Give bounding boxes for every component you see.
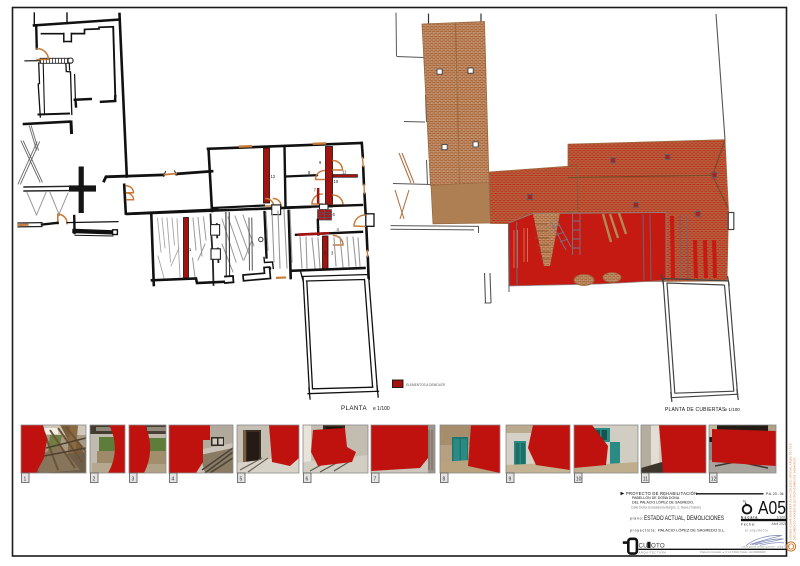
svg-text:e 1/100: e 1/100 (725, 407, 741, 412)
svg-text:plano:: plano: (630, 516, 644, 520)
svg-text:PALACIO LÓPEZ DE SAGREDO S.L.: PALACIO LÓPEZ DE SAGREDO S.L. (658, 528, 725, 533)
svg-text:9: 9 (509, 477, 512, 483)
svg-text:1/100: 1/100 (777, 515, 786, 519)
svg-text:PLANTA: PLANTA (341, 405, 367, 412)
svg-text:ESTADO ACTUAL, DEMOLICIONES: ESTADO ACTUAL, DEMOLICIONES (644, 516, 724, 522)
svg-text:Praza do Concello ▲ 1º LP 1: Praza do Concello ▲ 1º LP 15021 Toledo, … (700, 550, 766, 554)
svg-text:7: 7 (374, 477, 377, 483)
svg-text:4: 4 (172, 477, 175, 483)
svg-text:6: 6 (306, 477, 309, 483)
svg-text:DOCUMENTO VISADO ELECTRONICAME: DOCUMENTO VISADO ELECTRONICAMENTE 14/04/… (793, 457, 797, 540)
svg-text:ARQUITECTURA: ARQUITECTURA (639, 550, 667, 554)
svg-text:el arquitecto: el arquitecto (745, 529, 768, 533)
svg-text:Calle Doña Gonzalezna Burgos,: Calle Doña Gonzalezna Burgos, 2, Nava (T… (631, 505, 701, 509)
svg-text:2: 2 (93, 477, 96, 483)
svg-text:11: 11 (643, 477, 648, 483)
svg-text:12: 12 (271, 174, 276, 179)
svg-text:Abril 2020: Abril 2020 (772, 522, 787, 526)
svg-text:PLANTA DE CUBIERTAS: PLANTA DE CUBIERTAS (665, 407, 726, 413)
svg-text:3: 3 (132, 477, 135, 483)
svg-text:Fecha:: Fecha: (741, 522, 756, 526)
svg-text:maría garcía-rosado güemes -: maría garcía-rosado güemes - coleg 7997 (742, 545, 791, 549)
svg-text:10: 10 (334, 179, 339, 184)
svg-text:Escala: Escala (741, 515, 758, 519)
svg-text:10: 10 (576, 477, 582, 483)
svg-text:proyectista:: proyectista: (630, 529, 657, 533)
svg-text:1: 1 (24, 477, 27, 483)
svg-text:12: 12 (711, 477, 717, 483)
svg-text:8: 8 (443, 477, 446, 483)
svg-text:5: 5 (240, 477, 243, 483)
svg-text:e 1/100: e 1/100 (373, 406, 390, 412)
svg-text:CU: CU (639, 543, 648, 550)
svg-text:DEL PALACIO LÓPEZ DE SAGREDO,: DEL PALACIO LÓPEZ DE SAGREDO, (632, 499, 694, 504)
svg-text:OTO: OTO (651, 543, 665, 550)
svg-text:ELEMENTOS A DEMOLER: ELEMENTOS A DEMOLER (406, 383, 446, 387)
svg-text:VISADO COAM 2020 EXP 23-04 COL: VISADO COAM 2020 EXP 23-04 COLEGIO OFICI… (789, 443, 793, 540)
svg-text:PABELLÓN DE DOÑA DONA: PABELLÓN DE DOÑA DONA (632, 495, 680, 500)
svg-text:P.A. 23 - 04: P.A. 23 - 04 (766, 492, 784, 496)
